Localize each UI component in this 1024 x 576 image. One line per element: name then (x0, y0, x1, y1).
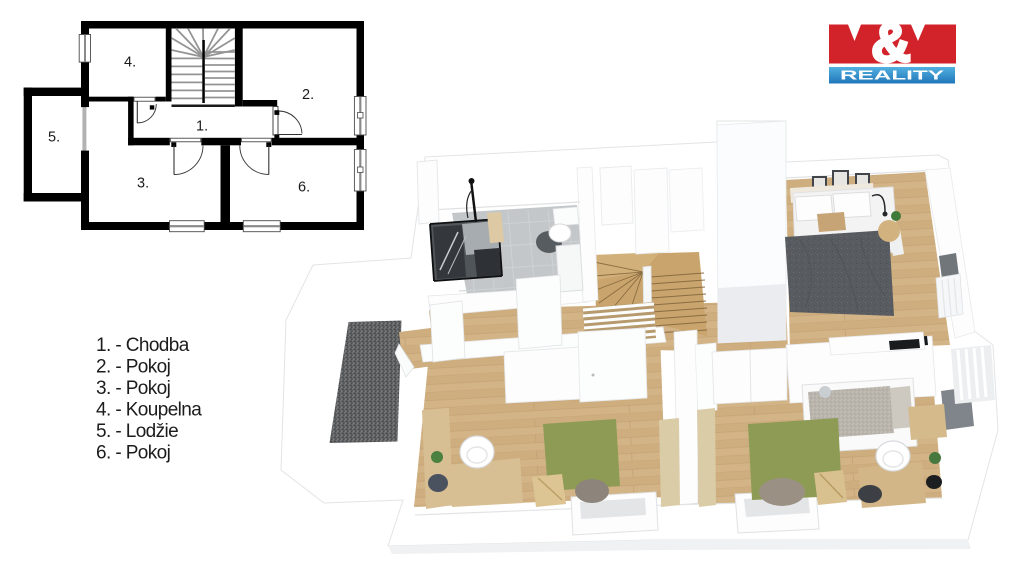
svg-text:6. - Pokoj: 6. - Pokoj (96, 443, 170, 464)
svg-text:1.: 1. (196, 119, 208, 135)
svg-text:2. - Pokoj: 2. - Pokoj (96, 357, 170, 378)
svg-text:REALITY: REALITY (840, 69, 945, 83)
svg-text:3.: 3. (137, 176, 149, 192)
svg-text:5. - Lodžie: 5. - Lodžie (96, 421, 178, 442)
svg-text:2.: 2. (302, 87, 314, 103)
svg-text:6.: 6. (298, 180, 310, 196)
svg-text:&: & (871, 12, 911, 74)
svg-text:1. - Chodba: 1. - Chodba (96, 335, 190, 356)
svg-text:4.: 4. (124, 55, 136, 71)
svg-text:3. - Pokoj: 3. - Pokoj (96, 378, 170, 399)
svg-text:5.: 5. (48, 130, 60, 146)
svg-text:4. - Koupelna: 4. - Koupelna (96, 400, 202, 421)
